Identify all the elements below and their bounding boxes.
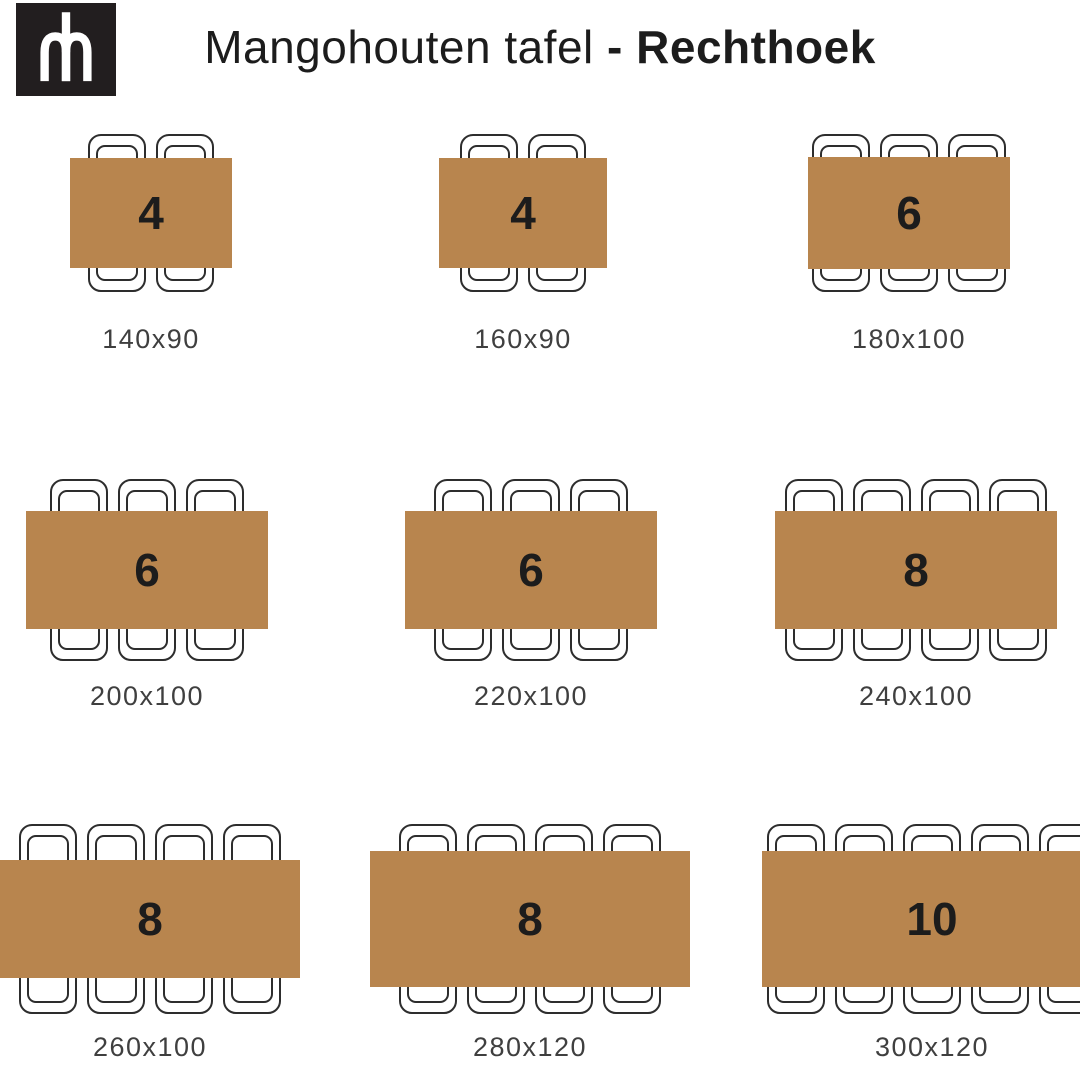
- table-top: 6: [808, 157, 1010, 269]
- seat-count: 4: [510, 186, 536, 240]
- table-top: 6: [26, 511, 268, 629]
- table-option-220x100: 6 220x100: [360, 479, 720, 712]
- table-option-280x120: 8 280x120: [360, 824, 720, 1063]
- table-top: 8: [0, 860, 300, 978]
- dimension-label: 300x120: [875, 1032, 989, 1063]
- table-diagram: 10: [752, 824, 1080, 1014]
- size-row-3: 8 260x100 8 280x120 10 300x120: [0, 824, 1080, 1063]
- dimension-label: 180x100: [852, 324, 966, 355]
- table-diagram: 8: [350, 824, 710, 1014]
- dimension-label: 260x100: [93, 1032, 207, 1063]
- seat-count: 8: [903, 543, 929, 597]
- mh-monogram-icon: [16, 3, 116, 96]
- table-option-240x100: 8 240x100: [720, 479, 1080, 712]
- table-option-180x100: 6 180x100: [720, 134, 1080, 355]
- table-top: 10: [762, 851, 1080, 987]
- dimension-label: 140x90: [102, 324, 200, 355]
- brand-logo: [16, 3, 116, 96]
- table-top: 8: [775, 511, 1057, 629]
- dimension-label: 160x90: [474, 324, 572, 355]
- table-diagram: 4: [343, 134, 703, 292]
- seat-count: 8: [517, 892, 543, 946]
- seat-count: 10: [906, 892, 957, 946]
- seat-count: 6: [896, 186, 922, 240]
- table-diagram: 6: [351, 479, 711, 661]
- seat-count: 6: [518, 543, 544, 597]
- seat-count: 6: [134, 543, 160, 597]
- size-row-1: 4 140x90 4 160x90 6 180x100: [0, 134, 1080, 355]
- seat-count: 8: [137, 892, 163, 946]
- table-diagram: 8: [0, 824, 330, 1014]
- table-top: 4: [439, 158, 607, 268]
- table-option-300x120: 10 300x120: [720, 824, 1080, 1063]
- dimension-label: 220x100: [474, 681, 588, 712]
- table-option-200x100: 6 200x100: [0, 479, 360, 712]
- header: Mangohouten tafel - Rechthoek: [0, 0, 1080, 108]
- table-top: 4: [70, 158, 232, 268]
- size-row-2: 6 200x100 6 220x100 8 240x100: [0, 479, 1080, 712]
- table-option-140x90: 4 140x90: [0, 134, 360, 355]
- table-top: 8: [370, 851, 690, 987]
- page-title-regular: Mangohouten tafel: [204, 21, 607, 73]
- dimension-label: 240x100: [859, 681, 973, 712]
- table-diagram: 6: [729, 134, 1080, 292]
- dimension-label: 280x120: [473, 1032, 587, 1063]
- page-title: Mangohouten tafel - Rechthoek: [0, 0, 1080, 73]
- table-diagram: 6: [0, 479, 327, 661]
- table-diagram: 4: [0, 134, 331, 292]
- dimension-label: 200x100: [90, 681, 204, 712]
- table-diagram: 8: [736, 479, 1080, 661]
- page-title-bold: - Rechthoek: [607, 21, 876, 73]
- table-option-260x100: 8 260x100: [0, 824, 360, 1063]
- table-top: 6: [405, 511, 657, 629]
- seat-count: 4: [138, 186, 164, 240]
- table-option-160x90: 4 160x90: [360, 134, 720, 355]
